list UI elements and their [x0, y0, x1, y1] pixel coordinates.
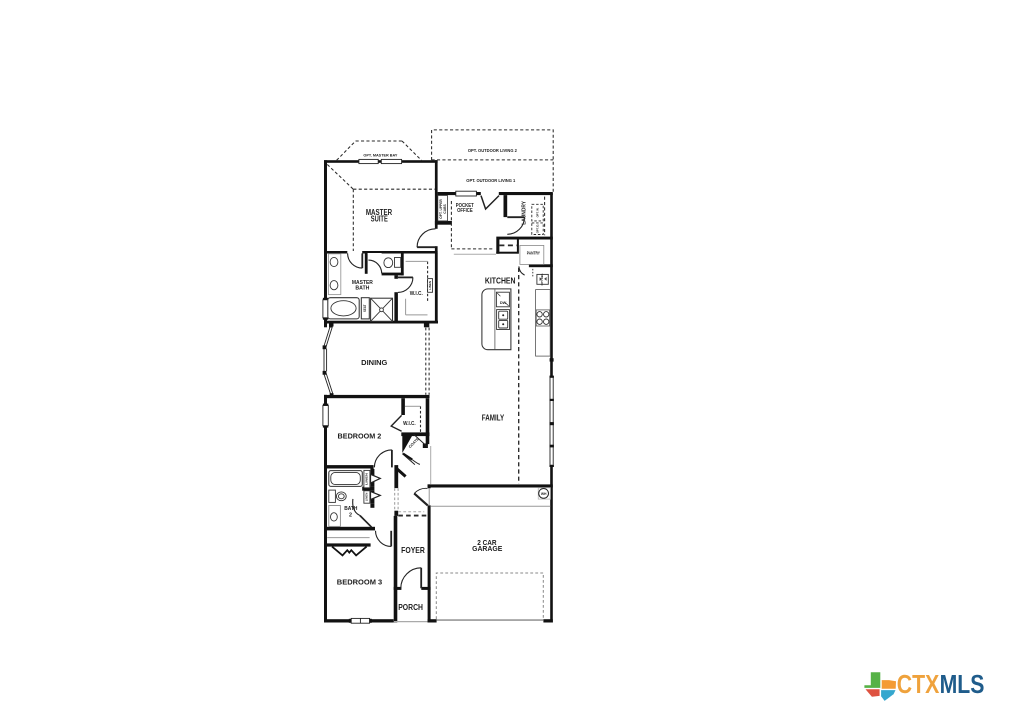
svg-text:BEDROOM 3: BEDROOM 3 — [337, 577, 382, 586]
svg-text:OFFICE: OFFICE — [457, 208, 473, 214]
svg-text:OPT. D.: OPT. D. — [536, 224, 540, 234]
svg-text:FAMILY: FAMILY — [482, 413, 505, 422]
svg-text:OPT. OUTDOOR LIVING 2: OPT. OUTDOOR LIVING 2 — [468, 148, 517, 153]
svg-text:BATH: BATH — [355, 285, 369, 291]
svg-text:PANTRY: PANTRY — [527, 250, 540, 255]
svg-text:FOYER: FOYER — [401, 545, 425, 555]
svg-text:W.I.C.: W.I.C. — [410, 291, 424, 297]
svg-text:OPT. OUTDOOR LIVING 1: OPT. OUTDOOR LIVING 1 — [466, 178, 515, 183]
svg-text:LINEN: LINEN — [365, 473, 369, 485]
svg-text:GARAGE: GARAGE — [472, 544, 502, 553]
svg-text:DW: DW — [500, 300, 507, 305]
svg-text:2: 2 — [349, 512, 352, 518]
svg-text:MLS: MLS — [940, 671, 985, 699]
svg-text:PORCH: PORCH — [398, 603, 423, 612]
svg-text:LAUNDRY: LAUNDRY — [522, 201, 528, 225]
svg-text:LINEN: LINEN — [428, 281, 432, 290]
svg-text:CABS: CABS — [443, 204, 447, 214]
svg-text:LINEN: LINEN — [365, 493, 369, 502]
svg-text:OPT. W.: OPT. W. — [536, 207, 540, 217]
svg-text:SUITE: SUITE — [371, 213, 388, 223]
svg-text:SEAT: SEAT — [363, 305, 367, 312]
svg-text:CTX: CTX — [897, 671, 940, 699]
svg-text:KITCHEN: KITCHEN — [485, 276, 516, 286]
svg-text:OPT. MASTER BAY: OPT. MASTER BAY — [363, 154, 397, 158]
svg-text:W.I.C.: W.I.C. — [403, 421, 416, 427]
svg-text:OPT. REF.: OPT. REF. — [540, 273, 544, 285]
svg-text:BEDROOM 2: BEDROOM 2 — [338, 434, 382, 441]
svg-text:WH: WH — [541, 492, 547, 496]
svg-text:DINING: DINING — [361, 360, 387, 367]
svg-text:BATH: BATH — [344, 506, 357, 512]
